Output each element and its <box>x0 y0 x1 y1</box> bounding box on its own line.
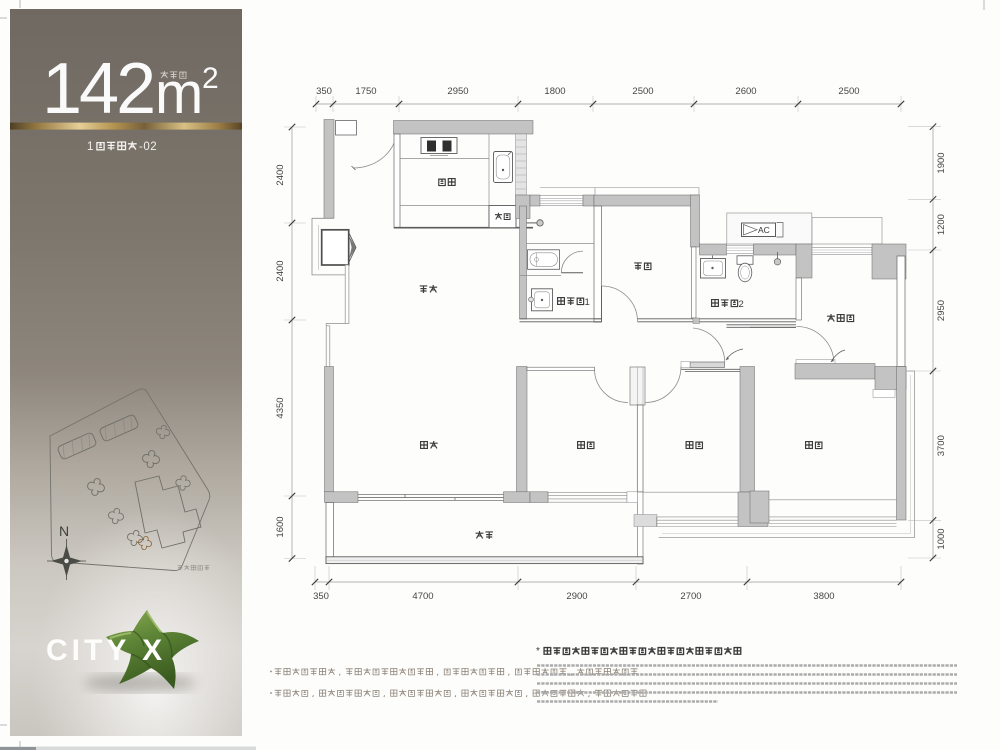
svg-text:2: 2 <box>739 299 744 310</box>
svg-text:1200: 1200 <box>936 214 947 235</box>
svg-text:2950: 2950 <box>936 300 947 321</box>
svg-text:4700: 4700 <box>412 591 433 602</box>
svg-text:1600: 1600 <box>275 516 286 537</box>
svg-text:1750: 1750 <box>355 86 376 97</box>
svg-text:AC: AC <box>758 225 770 235</box>
svg-text:2900: 2900 <box>566 591 587 602</box>
svg-text:2400: 2400 <box>275 164 286 185</box>
svg-text:1000: 1000 <box>936 528 947 549</box>
svg-text:N: N <box>59 523 69 539</box>
svg-text:1800: 1800 <box>544 86 565 97</box>
svg-text:1: 1 <box>585 297 590 308</box>
svg-text:2700: 2700 <box>680 591 701 602</box>
svg-text:3700: 3700 <box>936 435 947 456</box>
svg-text:350: 350 <box>313 591 329 602</box>
svg-text:2500: 2500 <box>838 86 859 97</box>
svg-text:2600: 2600 <box>735 86 756 97</box>
svg-text:m: m <box>155 61 203 126</box>
svg-text:1: 1 <box>87 141 93 153</box>
svg-text:2950: 2950 <box>447 86 468 97</box>
svg-text:2400: 2400 <box>275 260 286 281</box>
svg-text:350: 350 <box>316 86 332 97</box>
svg-text:142: 142 <box>42 49 153 129</box>
svg-text:*: * <box>536 646 540 657</box>
svg-text:2: 2 <box>202 62 219 95</box>
svg-text:-02: -02 <box>139 141 157 153</box>
svg-text:CITY X: CITY X <box>46 634 166 667</box>
svg-text:3800: 3800 <box>813 591 834 602</box>
svg-text:1900: 1900 <box>936 152 947 173</box>
svg-text:4350: 4350 <box>275 397 286 418</box>
svg-text:2500: 2500 <box>632 86 653 97</box>
